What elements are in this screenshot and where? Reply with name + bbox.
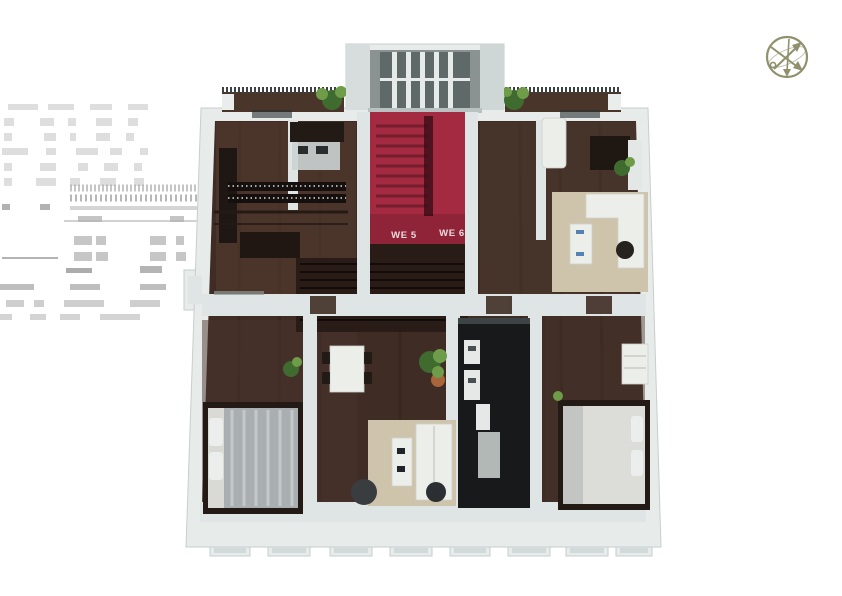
balcony-left (222, 86, 347, 112)
kitchen-cabinets (290, 122, 344, 142)
plant (553, 391, 563, 401)
unit-label-we6: WE 6 (439, 228, 465, 239)
bed (558, 400, 650, 510)
upper-right-rooms (542, 118, 648, 292)
compass-icon (766, 37, 808, 77)
bathtub (542, 118, 566, 168)
floorplan-canvas: WE 5 WE 6 (0, 0, 842, 596)
balcony-right (502, 87, 621, 112)
armchair (351, 479, 377, 505)
floorplan-render: WE 5 WE 6 (0, 0, 842, 596)
dresser (622, 344, 648, 384)
ghost-annotation (0, 104, 207, 320)
tv-sideboard (392, 438, 412, 486)
unit-label-we5: WE 5 (391, 230, 417, 241)
ghost-wall-text (214, 291, 264, 295)
bed (203, 402, 303, 514)
stairwell-bay (346, 44, 504, 113)
kitchen (458, 318, 530, 508)
side-chair (426, 482, 446, 502)
table-dark (240, 232, 300, 258)
staircase: WE 5 WE 6 (369, 112, 468, 258)
coffee-table (616, 241, 634, 259)
